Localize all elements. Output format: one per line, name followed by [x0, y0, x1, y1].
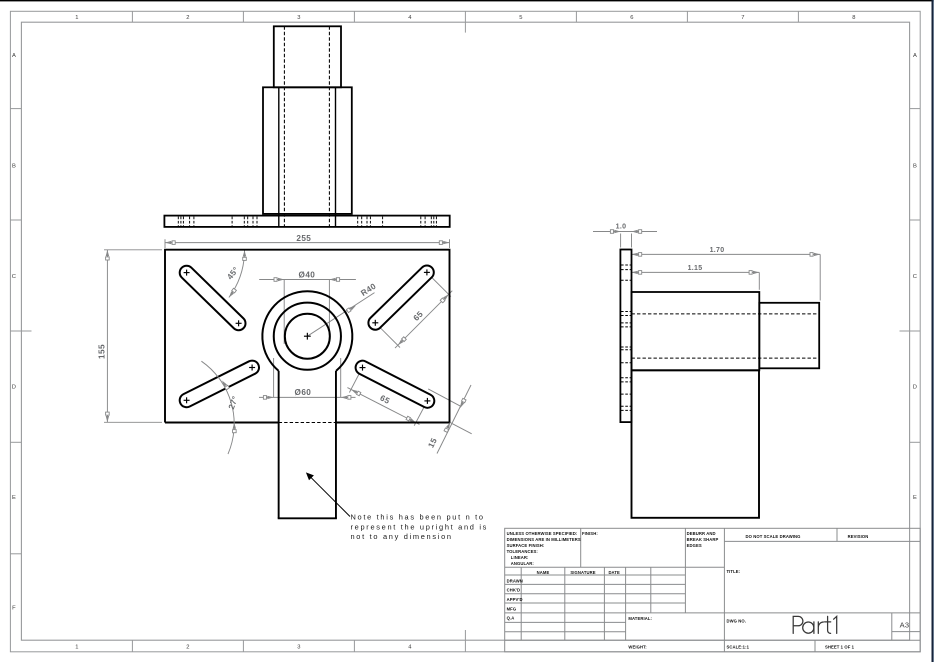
svg-text:1: 1 [75, 15, 78, 21]
svg-text:E: E [12, 495, 16, 501]
svg-text:BREAK SHARP: BREAK SHARP [687, 537, 719, 542]
svg-text:2: 2 [186, 15, 189, 21]
svg-text:DWG NO.: DWG NO. [727, 619, 747, 624]
svg-text:MATERIAL:: MATERIAL: [628, 616, 652, 621]
svg-text:TOLERANCES:: TOLERANCES: [507, 549, 538, 554]
svg-text:C: C [913, 274, 917, 280]
svg-text:MFG: MFG [507, 606, 517, 611]
svg-text:DIMENSIONS ARE IN MILLIMETERS: DIMENSIONS ARE IN MILLIMETERS [507, 537, 581, 542]
svg-text:A: A [913, 53, 917, 59]
svg-text:A3: A3 [900, 620, 910, 629]
svg-text:Ø40: Ø40 [299, 270, 316, 279]
svg-text:WEIGHT:: WEIGHT: [628, 644, 646, 649]
svg-text:not to any dimension: not to any dimension [351, 532, 453, 541]
svg-text:TITLE:: TITLE: [727, 569, 741, 574]
svg-text:EDGES: EDGES [687, 543, 702, 548]
svg-text:UNLESS OTHERWISE SPECIFIED:: UNLESS OTHERWISE SPECIFIED: [507, 531, 578, 536]
svg-text:1.70: 1.70 [710, 247, 725, 254]
svg-text:DRAWN: DRAWN [507, 578, 523, 583]
svg-text:A: A [12, 53, 16, 59]
svg-text:LINEAR:: LINEAR: [511, 555, 529, 560]
svg-text:D: D [913, 385, 917, 391]
svg-text:SIGNATURE: SIGNATURE [570, 570, 595, 575]
svg-text:8: 8 [852, 15, 855, 21]
svg-text:APPV'D: APPV'D [507, 597, 523, 602]
svg-text:SHEET 1 OF 1: SHEET 1 OF 1 [825, 645, 855, 650]
svg-text:Ø60: Ø60 [295, 388, 312, 397]
svg-text:SCALE:1:1: SCALE:1:1 [727, 644, 750, 649]
svg-text:1: 1 [75, 645, 78, 651]
svg-text:3: 3 [297, 15, 300, 21]
svg-text:3: 3 [297, 645, 300, 651]
svg-text:B: B [913, 164, 917, 170]
svg-text:2: 2 [186, 645, 189, 651]
svg-text:DATE: DATE [608, 570, 620, 575]
svg-text:ANGULAR:: ANGULAR: [511, 561, 534, 566]
svg-text:155: 155 [98, 344, 107, 359]
svg-text:C: C [12, 274, 16, 280]
svg-text:Q.A: Q.A [507, 616, 515, 621]
svg-text:5: 5 [519, 15, 522, 21]
svg-text:E: E [913, 495, 917, 501]
svg-text:255: 255 [296, 234, 311, 243]
svg-text:1.0: 1.0 [616, 224, 627, 231]
svg-text:CHK'D: CHK'D [507, 588, 521, 593]
svg-text:1.15: 1.15 [688, 265, 703, 272]
svg-text:D: D [12, 385, 16, 391]
svg-text:DO NOT SCALE DRAWING: DO NOT SCALE DRAWING [745, 534, 800, 539]
svg-text:SURFACE FINISH:: SURFACE FINISH: [507, 543, 545, 548]
svg-text:represent the upright and is: represent the upright and is [351, 522, 489, 531]
svg-text:F: F [12, 606, 16, 612]
svg-text:7: 7 [741, 15, 744, 21]
svg-text:NAME: NAME [537, 570, 550, 575]
svg-text:FINISH:: FINISH: [582, 531, 598, 536]
svg-text:Note this has been put n to: Note this has been put n to [351, 512, 485, 521]
svg-text:6: 6 [630, 15, 633, 21]
svg-text:B: B [12, 164, 16, 170]
svg-text:REVISION: REVISION [848, 534, 869, 539]
svg-text:DEBURR AND: DEBURR AND [687, 531, 716, 536]
